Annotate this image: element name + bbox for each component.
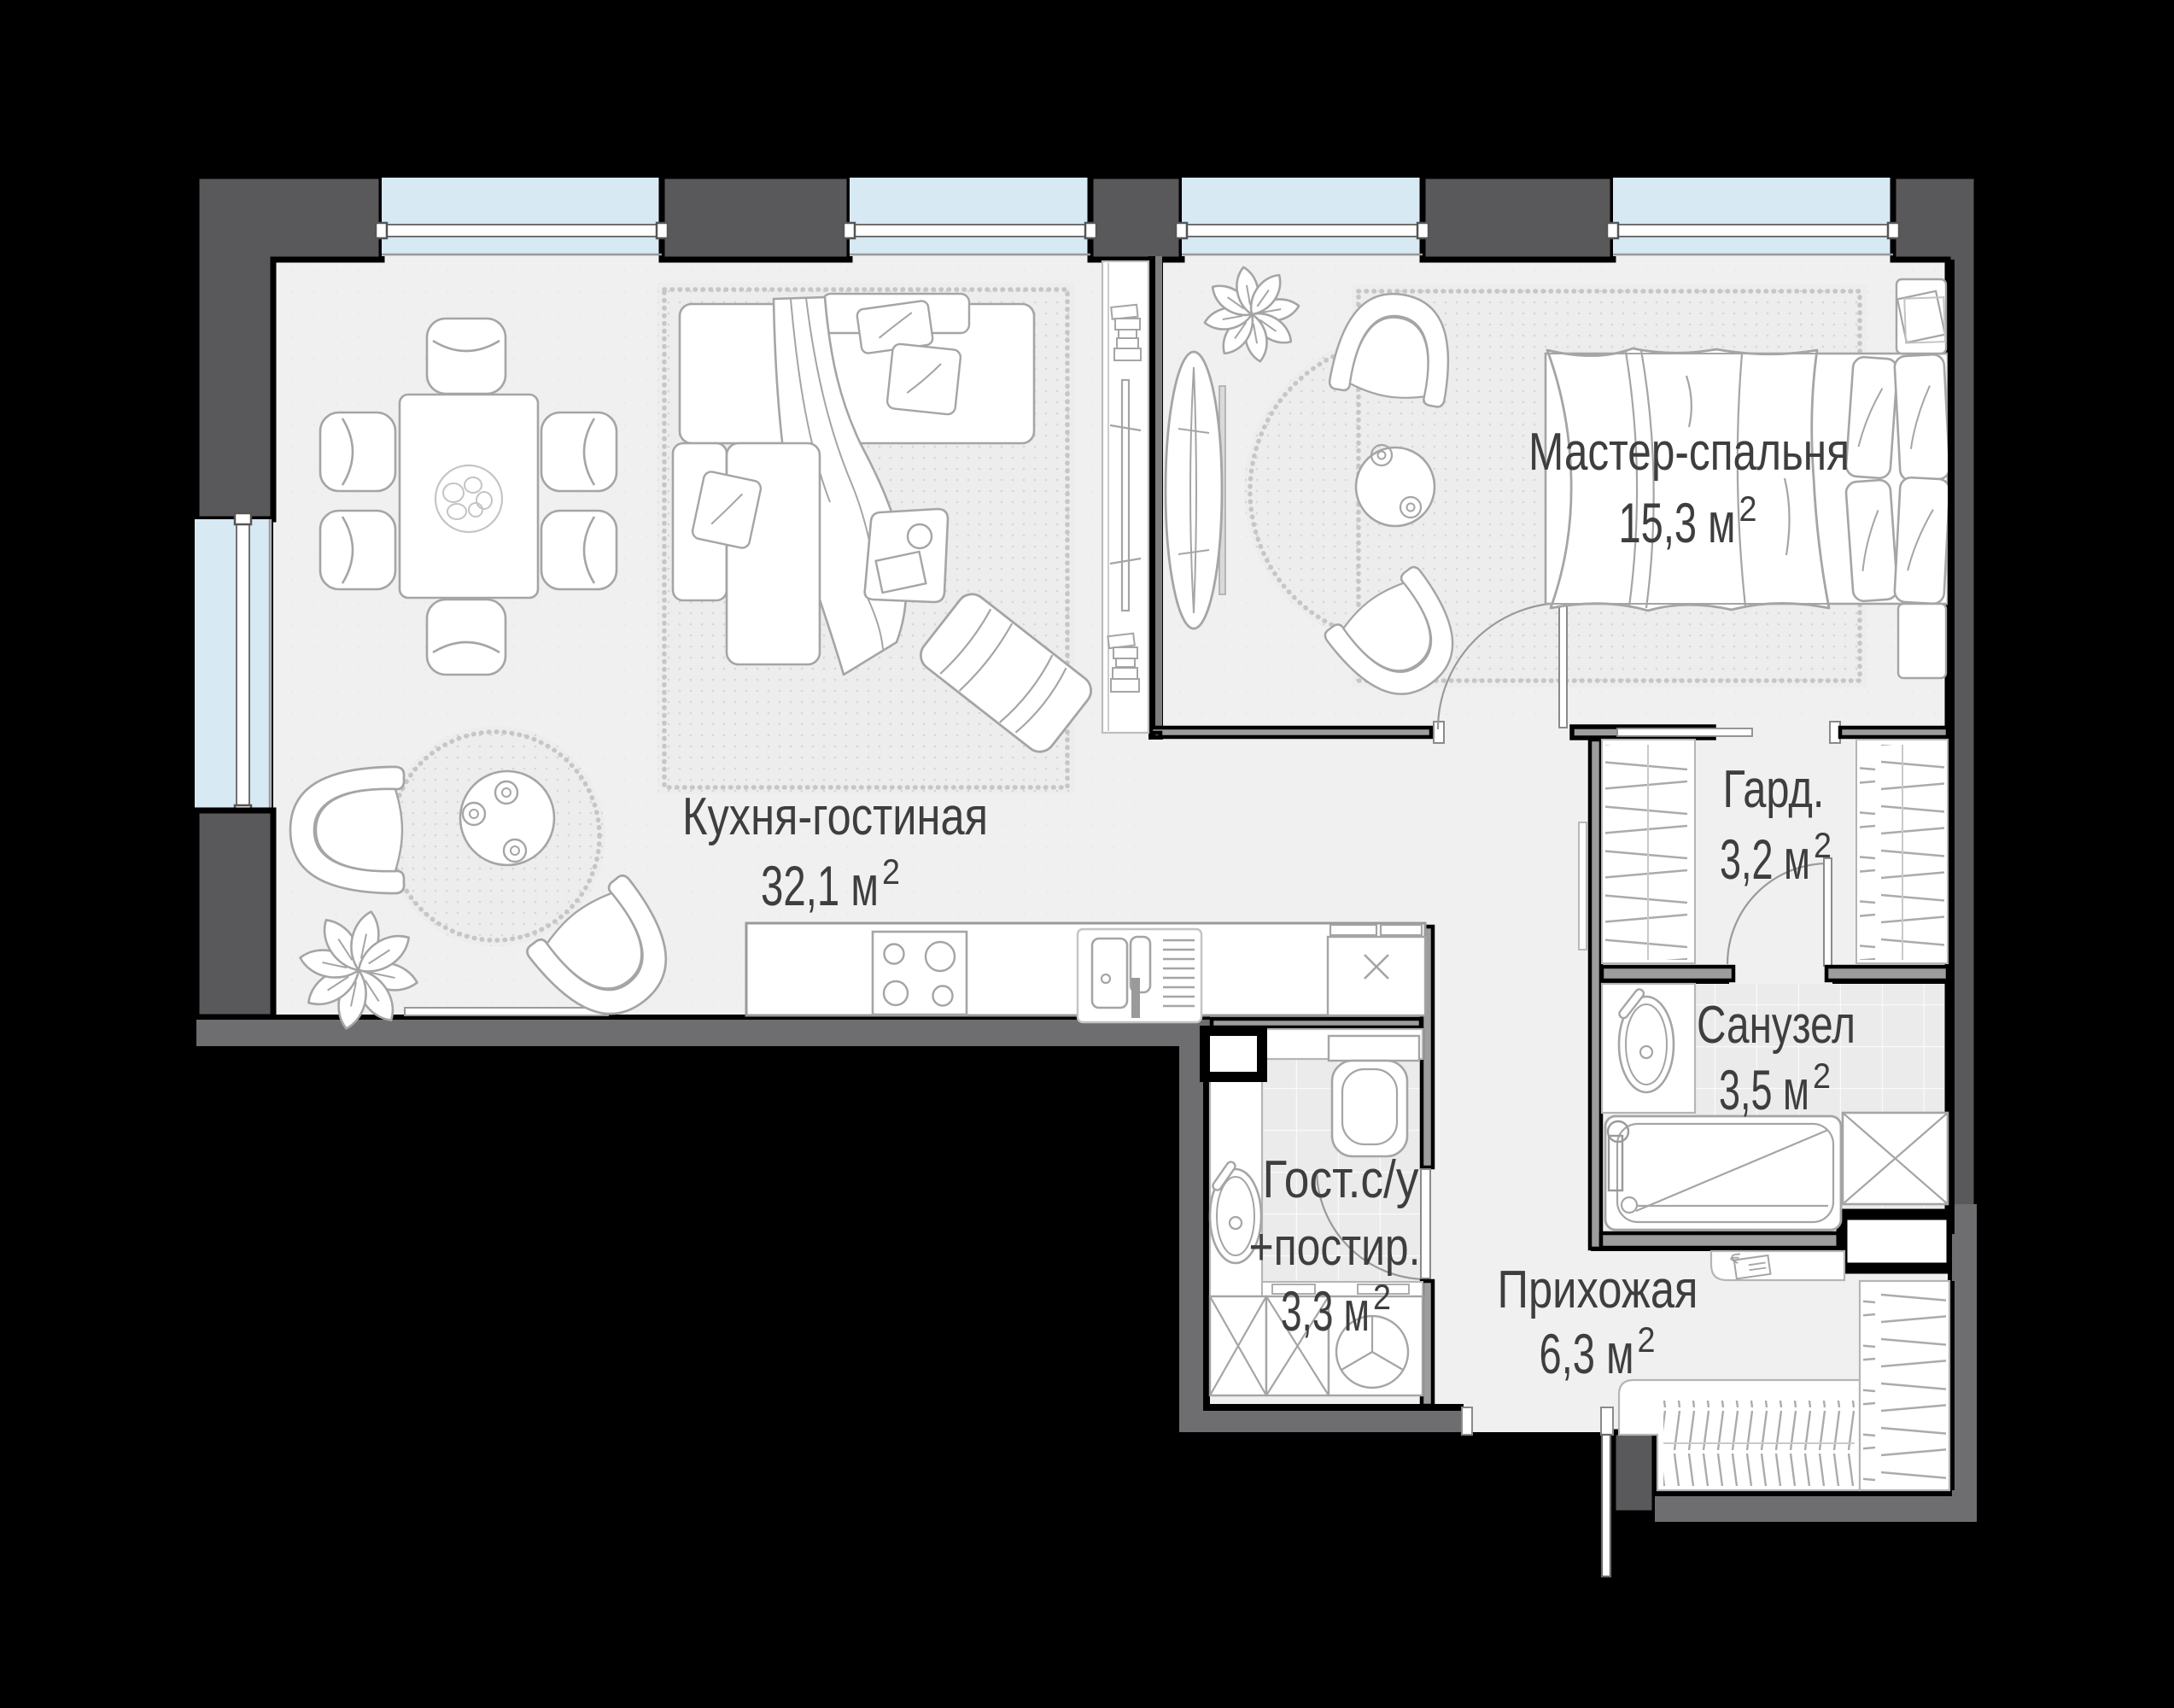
svg-text:Прихожая: Прихожая	[1498, 1261, 1698, 1319]
svg-text:3,2 м: 3,2 м	[1720, 828, 1810, 891]
svg-text:2: 2	[1814, 825, 1832, 865]
svg-text:Мастер-спальня: Мастер-спальня	[1528, 423, 1850, 482]
svg-text:2: 2	[1638, 1319, 1656, 1360]
svg-text:Гард.: Гард.	[1723, 760, 1825, 819]
svg-text:32,1 м: 32,1 м	[761, 854, 879, 917]
svg-text:2: 2	[1373, 1277, 1391, 1317]
svg-text:2: 2	[1739, 488, 1757, 529]
svg-text:2: 2	[882, 851, 900, 892]
svg-text:2: 2	[1813, 1056, 1831, 1096]
svg-text:6,3 м: 6,3 м	[1540, 1322, 1634, 1385]
svg-text:Санузел: Санузел	[1697, 996, 1855, 1055]
svg-text:3,5 м: 3,5 м	[1719, 1058, 1809, 1121]
svg-text:Кухня-гостиная: Кухня-гостиная	[682, 787, 988, 846]
svg-text:+постир.: +постир.	[1249, 1218, 1421, 1277]
svg-text:Гост.с/у: Гост.с/у	[1263, 1150, 1419, 1209]
svg-text:3,3 м: 3,3 м	[1281, 1279, 1370, 1342]
svg-text:15,3 м: 15,3 м	[1619, 491, 1736, 554]
